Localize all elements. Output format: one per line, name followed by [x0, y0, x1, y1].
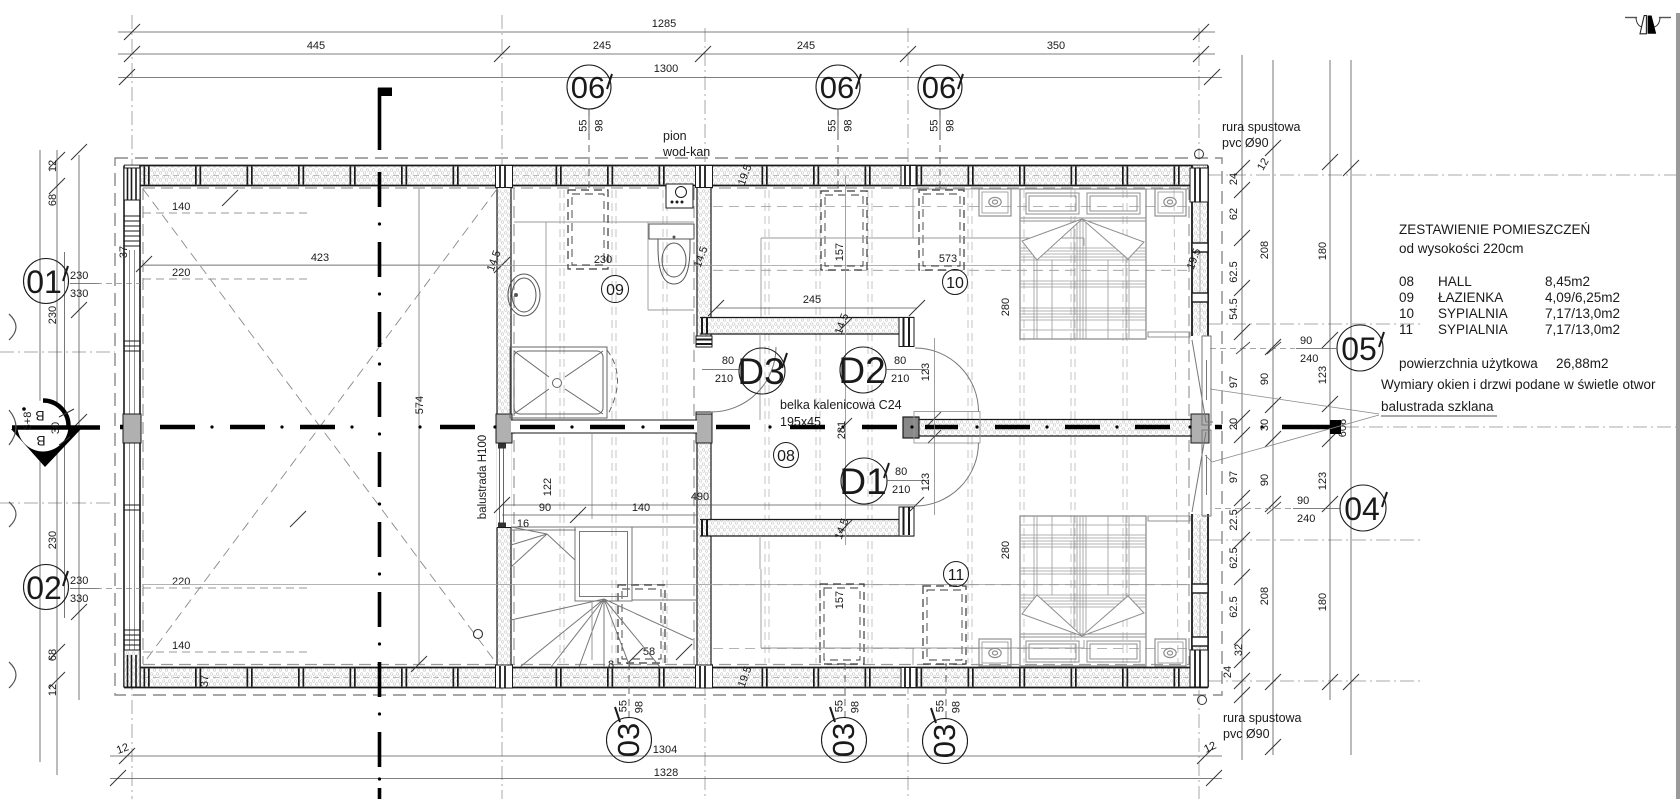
svg-text:62: 62 [1228, 208, 1240, 220]
svg-text:55: 55 [929, 120, 941, 132]
svg-text:37: 37 [118, 246, 130, 258]
svg-text:B: B [35, 408, 44, 424]
svg-text:11: 11 [948, 567, 965, 584]
svg-text:98: 98 [951, 701, 963, 713]
svg-text:06: 06 [922, 70, 956, 105]
svg-text:SYPIALNIA: SYPIALNIA [1438, 306, 1508, 321]
svg-text:balustrada H100: balustrada H100 [477, 435, 489, 519]
svg-text:98: 98 [634, 701, 646, 713]
svg-text:20: 20 [1228, 418, 1240, 430]
svg-text:157: 157 [834, 243, 846, 261]
svg-text:180: 180 [1317, 593, 1329, 611]
svg-text:210: 210 [892, 484, 910, 496]
svg-text:80: 80 [894, 355, 906, 367]
svg-text:157: 157 [834, 591, 846, 609]
svg-text:97: 97 [1228, 376, 1240, 388]
svg-text:445: 445 [307, 40, 325, 52]
svg-text:210: 210 [715, 373, 733, 385]
svg-text:62.5: 62.5 [1228, 261, 1240, 282]
svg-text:62.5: 62.5 [1228, 547, 1240, 568]
svg-text:123: 123 [1317, 472, 1329, 490]
svg-text:180: 180 [1317, 242, 1329, 260]
svg-text:ŁAZIENKA: ŁAZIENKA [1438, 290, 1503, 305]
svg-text:208: 208 [1259, 241, 1271, 259]
svg-text:26,88m2: 26,88m2 [1556, 356, 1609, 371]
svg-text:ZESTAWIENIE POMIESZCZEŃ: ZESTAWIENIE POMIESZCZEŃ [1399, 222, 1590, 237]
svg-text:balustrada szklana: balustrada szklana [1381, 399, 1494, 414]
svg-text:7,17/13,0m2: 7,17/13,0m2 [1545, 322, 1620, 337]
svg-text:55: 55 [935, 700, 947, 712]
svg-text:98: 98 [843, 120, 855, 132]
svg-text:37: 37 [199, 675, 211, 687]
svg-text:6+8: 6+8 [22, 412, 34, 431]
svg-text:D1: D1 [839, 461, 886, 502]
svg-text:245: 245 [803, 294, 821, 306]
svg-text:208: 208 [1259, 587, 1271, 605]
svg-text:08: 08 [1399, 274, 1414, 289]
svg-text:490: 490 [691, 491, 709, 503]
svg-text:05: 05 [1341, 331, 1377, 367]
svg-text:12: 12 [47, 160, 59, 172]
svg-text:wod-kan: wod-kan [662, 145, 710, 159]
svg-text:30: 30 [50, 422, 62, 434]
svg-text:123: 123 [920, 473, 932, 491]
svg-text:09: 09 [606, 282, 624, 299]
svg-text:32: 32 [1233, 644, 1245, 656]
svg-text:330: 330 [70, 593, 88, 605]
svg-text:90: 90 [539, 502, 551, 514]
svg-text:D2: D2 [838, 350, 885, 391]
svg-text:54.5: 54.5 [1228, 298, 1240, 319]
svg-text:1300: 1300 [654, 63, 678, 75]
svg-text:SYPIALNIA: SYPIALNIA [1438, 322, 1508, 337]
svg-text:90: 90 [1259, 474, 1271, 486]
svg-text:80: 80 [895, 466, 907, 478]
svg-text:140: 140 [172, 201, 190, 213]
svg-text:pvc Ø90: pvc Ø90 [1222, 136, 1269, 150]
svg-text:140: 140 [632, 502, 650, 514]
svg-text:55: 55 [618, 700, 630, 712]
svg-text:240: 240 [1297, 513, 1315, 525]
svg-text:belka kalenicowa C24: belka kalenicowa C24 [780, 398, 902, 412]
svg-text:55: 55 [834, 700, 846, 712]
svg-text:od wysokości 220cm: od wysokości 220cm [1399, 241, 1524, 256]
svg-text:09: 09 [1399, 290, 1414, 305]
svg-text:281: 281 [836, 421, 848, 439]
svg-text:1304: 1304 [653, 744, 677, 756]
svg-text:90: 90 [1259, 373, 1271, 385]
svg-text:574: 574 [414, 396, 426, 414]
svg-text:12: 12 [47, 684, 59, 696]
svg-text:90: 90 [1300, 335, 1312, 347]
svg-text:220: 220 [172, 267, 190, 279]
svg-text:423: 423 [311, 252, 329, 264]
svg-text:10: 10 [946, 275, 964, 292]
svg-text:98: 98 [850, 701, 862, 713]
svg-text:HALL: HALL [1438, 274, 1472, 289]
svg-text:4,09/6,25m2: 4,09/6,25m2 [1545, 290, 1620, 305]
svg-text:220: 220 [172, 576, 190, 588]
svg-text:68: 68 [47, 649, 59, 661]
svg-text:210: 210 [891, 373, 909, 385]
svg-text:02: 02 [26, 570, 62, 606]
svg-text:90: 90 [1297, 495, 1309, 507]
svg-text:24: 24 [1228, 173, 1240, 185]
svg-text:55: 55 [578, 120, 590, 132]
svg-text:powierzchnia użytkowa: powierzchnia użytkowa [1399, 356, 1538, 371]
svg-text:230: 230 [47, 531, 59, 549]
svg-text:08: 08 [777, 448, 795, 465]
svg-text:B: B [36, 433, 45, 449]
svg-text:123: 123 [1317, 366, 1329, 384]
svg-text:55: 55 [827, 120, 839, 132]
svg-text:10: 10 [1399, 306, 1414, 321]
svg-text:03: 03 [611, 723, 646, 757]
svg-text:11: 11 [1399, 322, 1413, 337]
svg-text:06: 06 [571, 70, 605, 105]
svg-text:80: 80 [722, 355, 734, 367]
svg-text:rura spustowa: rura spustowa [1222, 120, 1301, 134]
svg-text:D3: D3 [737, 351, 784, 392]
svg-text:8,45m2: 8,45m2 [1545, 274, 1590, 289]
svg-text:03: 03 [927, 724, 962, 758]
svg-text:8: 8 [608, 659, 614, 671]
svg-text:230: 230 [47, 306, 59, 324]
svg-text:rura spustowa: rura spustowa [1223, 711, 1302, 725]
svg-text:230: 230 [594, 254, 612, 266]
svg-text:62.5: 62.5 [1228, 596, 1240, 617]
svg-text:245: 245 [593, 40, 611, 52]
svg-text:pvc Ø90: pvc Ø90 [1223, 727, 1270, 741]
svg-text:140: 140 [172, 640, 190, 652]
svg-text:240: 240 [1300, 353, 1318, 365]
svg-text:350: 350 [1047, 40, 1065, 52]
svg-text:1285: 1285 [652, 18, 676, 30]
svg-text:573: 573 [939, 253, 957, 265]
svg-text:24: 24 [1222, 666, 1234, 678]
svg-text:98: 98 [594, 120, 606, 132]
svg-text:97: 97 [1228, 471, 1240, 483]
svg-text:7,17/13,0m2: 7,17/13,0m2 [1545, 306, 1620, 321]
svg-text:03: 03 [826, 723, 861, 757]
svg-text:230: 230 [70, 575, 88, 587]
svg-text:30: 30 [1259, 419, 1271, 431]
svg-text:123: 123 [920, 363, 932, 381]
svg-text:280: 280 [1000, 298, 1012, 316]
svg-text:330: 330 [70, 288, 88, 300]
svg-text:68: 68 [47, 194, 59, 206]
svg-text:01: 01 [26, 264, 62, 300]
svg-text:06: 06 [820, 70, 854, 105]
svg-text:98: 98 [945, 120, 957, 132]
svg-text:Wymiary okien i drzwi podane w: Wymiary okien i drzwi podane w świetle o… [1381, 377, 1656, 392]
svg-text:280: 280 [1000, 541, 1012, 559]
svg-text:04: 04 [1344, 491, 1380, 527]
svg-text:122: 122 [542, 478, 554, 496]
svg-text:195x45: 195x45 [780, 415, 821, 429]
svg-text:pion: pion [663, 129, 687, 143]
svg-text:230: 230 [70, 270, 88, 282]
svg-text:245: 245 [797, 40, 815, 52]
svg-text:1328: 1328 [654, 767, 678, 779]
